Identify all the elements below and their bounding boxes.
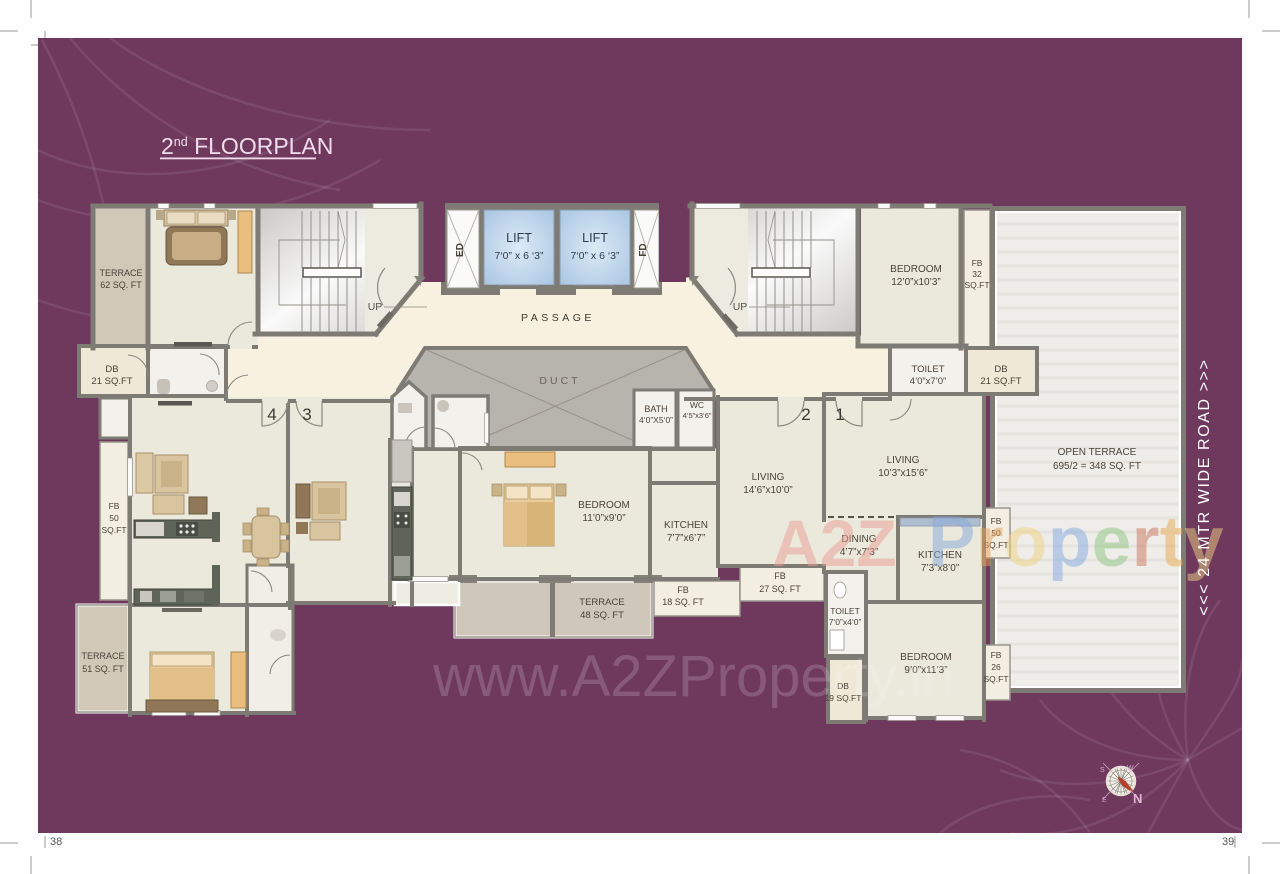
svg-text:LIVING: LIVING [752,472,785,483]
svg-text:TOILET: TOILET [830,606,860,616]
svg-text:LIFT: LIFT [582,231,608,245]
svg-text:2: 2 [801,405,810,424]
svg-text:LIVING: LIVING [887,455,920,466]
svg-text:A2Z: A2Z [772,506,897,580]
svg-text:21 SQ.FT: 21 SQ.FT [91,376,132,387]
svg-text:26: 26 [991,662,1001,672]
svg-text:WC: WC [690,400,704,410]
svg-text:KITCHEN: KITCHEN [664,520,708,531]
svg-text:BEDROOM: BEDROOM [890,264,942,275]
svg-text:48 SQ. FT: 48 SQ. FT [580,610,624,621]
svg-text:4‘5”x3‘6”: 4‘5”x3‘6” [683,411,712,420]
svg-text:7’7”x6’7”: 7’7”x6’7” [667,533,705,544]
svg-text:1: 1 [835,405,844,424]
svg-text:LIFT: LIFT [506,231,532,245]
svg-text:PASSAGE: PASSAGE [521,312,595,324]
svg-text:7‘0” x 6 ‘3”: 7‘0” x 6 ‘3” [570,250,620,262]
svg-text:ED: ED [455,243,466,257]
svg-text:BATH: BATH [644,404,667,414]
svg-text:27 SQ. FT: 27 SQ. FT [759,584,801,594]
svg-text:BEDROOM: BEDROOM [578,500,630,511]
svg-text:DB: DB [994,364,1007,375]
svg-text:4‘0”X5‘0”: 4‘0”X5‘0” [639,415,673,425]
svg-text:OPEN TERRACE: OPEN TERRACE [1058,447,1137,458]
svg-text:Property: Property [928,503,1224,582]
svg-text:FB: FB [972,258,983,268]
svg-text:UP: UP [368,301,383,313]
svg-text:12’0”x10’3”: 12’0”x10’3” [891,277,940,288]
svg-text:11’0”x9’0”: 11’0”x9’0” [582,513,625,524]
svg-text:14’6”x10’0”: 14’6”x10’0” [743,485,792,496]
svg-text:TERRACE: TERRACE [99,268,142,278]
svg-text:DB: DB [105,364,118,375]
svg-text:38: 38 [50,836,62,848]
svg-text:FB: FB [677,585,689,595]
svg-text:51 SQ. FT: 51 SQ. FT [82,664,124,674]
svg-text:TERRACE: TERRACE [81,651,124,661]
svg-text:4’0”x7’0”: 4’0”x7’0” [910,376,946,387]
svg-text:695/2 = 348 SQ. FT: 695/2 = 348 SQ. FT [1053,461,1141,472]
svg-text:N: N [1133,791,1142,806]
svg-text:W: W [1127,765,1134,772]
svg-text:S: S [1100,767,1105,774]
svg-text:SQ.FT: SQ.FT [964,280,989,290]
svg-text:4: 4 [267,405,276,424]
svg-text:UP: UP [733,301,748,313]
svg-text:SQ.FT: SQ.FT [983,674,1008,684]
svg-text:TERRACE: TERRACE [579,597,624,608]
svg-text:DUCT: DUCT [539,375,580,387]
svg-text:7‘0”x4‘0”: 7‘0”x4‘0” [829,617,862,627]
svg-text:SQ.FT: SQ.FT [101,525,126,535]
svg-text:www.A2ZProperty.in: www.A2ZProperty.in [432,644,954,709]
svg-text:32: 32 [972,269,982,279]
svg-text:21 SQ.FT: 21 SQ.FT [980,376,1021,387]
svg-text:62 SQ. FT: 62 SQ. FT [100,280,142,290]
svg-text:E: E [1102,797,1107,804]
svg-text:FD: FD [638,243,649,256]
svg-text:3: 3 [302,405,311,424]
svg-text:2nd FLOORPLAN: 2nd FLOORPLAN [161,133,333,159]
svg-text:FB: FB [109,501,120,511]
svg-text:7‘0” x 6 ‘3”: 7‘0” x 6 ‘3” [494,250,544,262]
svg-text:FB: FB [991,650,1002,660]
svg-text:50: 50 [109,513,119,523]
svg-text:<<< 24 MTR WIDE ROAD >>>: <<< 24 MTR WIDE ROAD >>> [1196,358,1213,615]
svg-text:39: 39 [1222,836,1234,848]
svg-text:10’3”x15’6”: 10’3”x15’6” [878,468,927,479]
svg-text:TOILET: TOILET [911,364,944,375]
svg-text:18 SQ. FT: 18 SQ. FT [662,597,704,607]
